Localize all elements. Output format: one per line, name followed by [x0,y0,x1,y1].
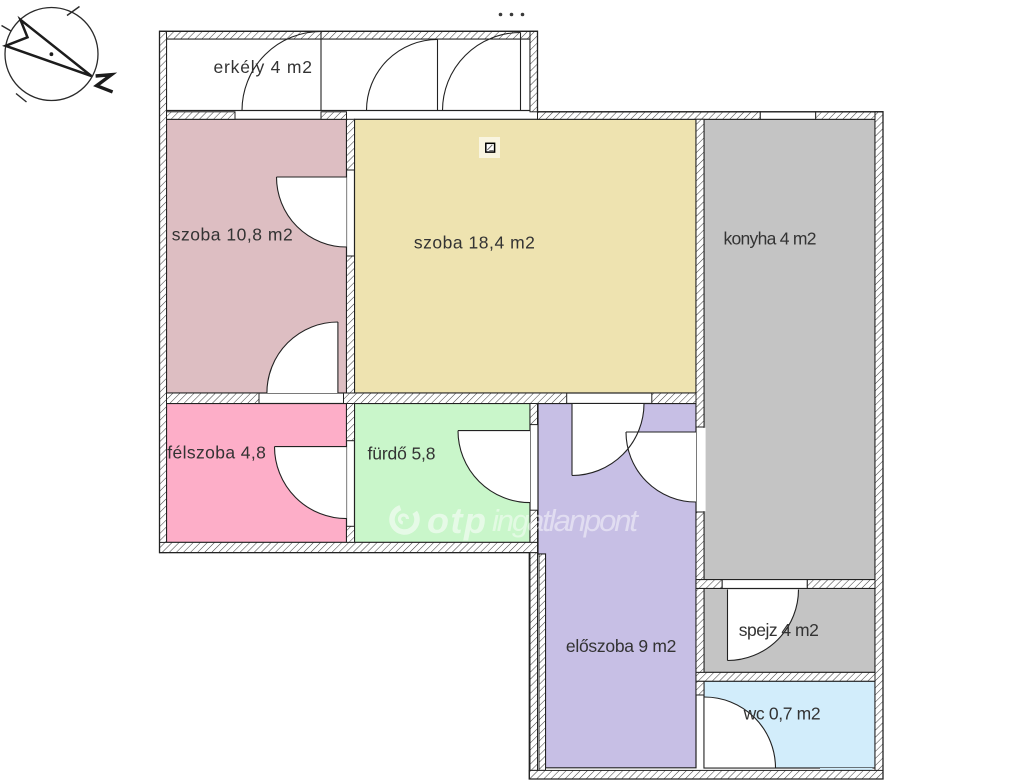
svg-text:otp: otp [427,500,486,541]
svg-text:wc 0,7 m2: wc 0,7 m2 [743,704,821,724]
svg-text:fürdő 5,8: fürdő 5,8 [368,444,436,464]
svg-text:szoba 18,4 m2: szoba 18,4 m2 [414,232,535,252]
svg-text:spejz 4 m2: spejz 4 m2 [739,620,819,640]
svg-text:előszoba 9 m2: előszoba 9 m2 [566,636,677,656]
svg-text:konyha 4 m2: konyha 4 m2 [724,229,817,249]
svg-text:félszoba 4,8: félszoba 4,8 [167,443,265,463]
svg-text:ingatlanpont: ingatlanpont [492,503,639,538]
svg-text:erkély 4 m2: erkély 4 m2 [214,57,313,77]
svg-text:szoba 10,8 m2: szoba 10,8 m2 [172,225,293,245]
